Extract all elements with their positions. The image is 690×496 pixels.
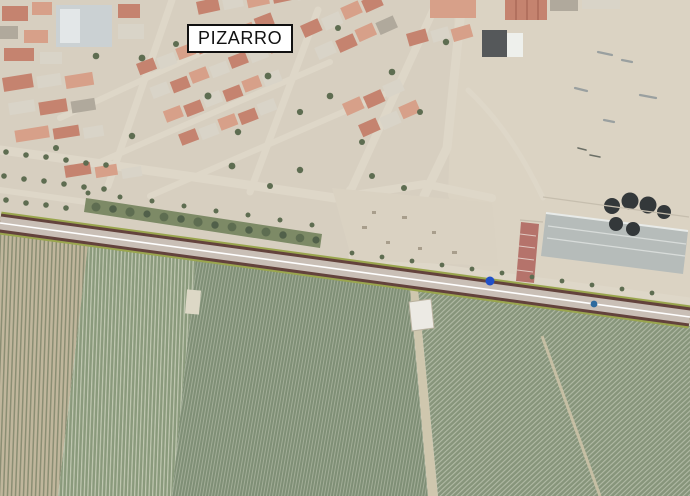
poi-marker-blue[interactable] [486,277,495,286]
field-shed [409,299,434,331]
poi-marker-teal[interactable] [591,301,598,308]
map-canvas [0,0,690,496]
field-parcel-center [172,259,428,496]
place-label: PIZARRO [187,24,293,53]
place-label-text: PIZARRO [198,28,282,48]
warehouse-building [482,30,523,57]
aerial-map-view[interactable]: PIZARRO [0,0,690,496]
field-corner-structure [185,289,201,314]
screenshot-root: PIZARRO [0,0,690,496]
